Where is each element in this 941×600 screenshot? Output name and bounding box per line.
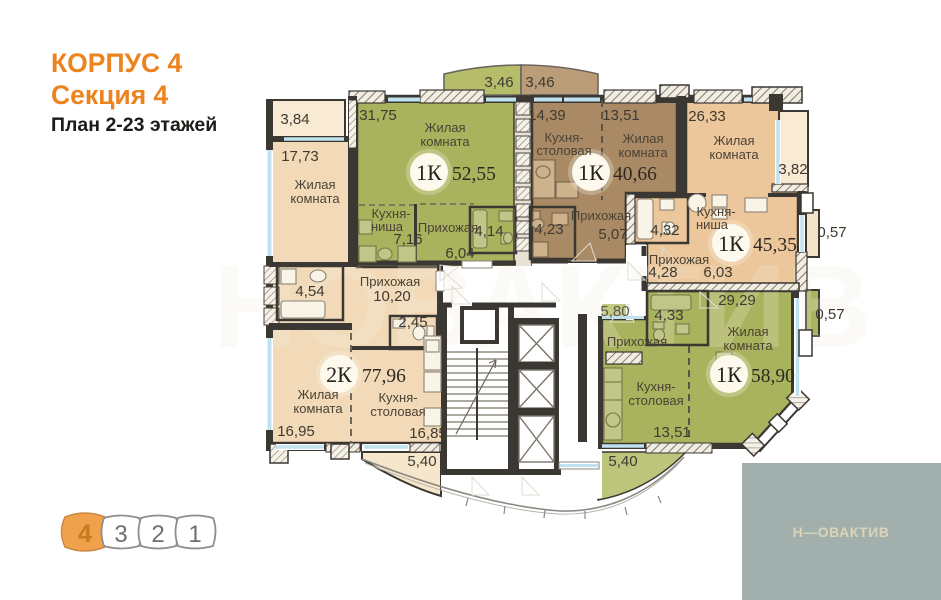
svg-text:4,28: 4,28: [648, 264, 677, 281]
svg-text:5,80: 5,80: [600, 303, 629, 320]
svg-text:3,46: 3,46: [484, 74, 513, 91]
svg-text:Жилая: Жилая: [713, 133, 754, 148]
svg-text:13,51: 13,51: [602, 107, 640, 124]
svg-text:5,07: 5,07: [598, 226, 627, 243]
svg-text:Прихожая: Прихожая: [418, 220, 478, 235]
svg-text:Прихожая: Прихожая: [571, 208, 631, 223]
svg-text:Жилая: Жилая: [424, 120, 465, 135]
svg-text:столовая: столовая: [370, 404, 425, 419]
svg-text:столовая: столовая: [628, 393, 683, 408]
svg-text:комната: комната: [618, 145, 668, 160]
svg-text:5,40: 5,40: [407, 453, 436, 470]
svg-text:3,84: 3,84: [280, 111, 309, 128]
svg-text:Кухня-: Кухня-: [378, 390, 417, 405]
svg-text:6,03: 6,03: [703, 264, 732, 281]
svg-text:столовая: столовая: [536, 143, 591, 158]
svg-text:16,85: 16,85: [409, 425, 447, 442]
svg-text:5,40: 5,40: [608, 453, 637, 470]
svg-text:Секция 4: Секция 4: [51, 80, 169, 110]
svg-text:45,35: 45,35: [753, 235, 797, 256]
svg-text:3,82: 3,82: [778, 161, 807, 178]
svg-text:17,73: 17,73: [281, 148, 319, 165]
svg-text:4,54: 4,54: [295, 283, 324, 300]
svg-text:4,23: 4,23: [534, 221, 563, 238]
svg-text:Прихожая: Прихожая: [360, 274, 420, 289]
svg-text:0,57: 0,57: [817, 224, 846, 241]
svg-text:Жилая: Жилая: [727, 324, 768, 339]
svg-text:комната: комната: [709, 147, 759, 162]
svg-text:Жилая: Жилая: [297, 387, 338, 402]
svg-text:КОРПУС 4: КОРПУС 4: [51, 48, 182, 78]
svg-text:58,90: 58,90: [751, 366, 795, 387]
svg-text:2,45: 2,45: [398, 314, 427, 331]
svg-text:4,32: 4,32: [650, 222, 679, 239]
svg-text:ниша: ниша: [696, 217, 729, 232]
svg-text:16,95: 16,95: [277, 423, 315, 440]
svg-text:6,04: 6,04: [445, 245, 474, 262]
svg-text:3,46: 3,46: [525, 74, 554, 91]
svg-text:40,66: 40,66: [613, 164, 657, 185]
svg-text:Н—ОВАКТИВ: Н—ОВАКТИВ: [793, 524, 890, 540]
svg-text:Жилая: Жилая: [294, 177, 335, 192]
svg-text:4: 4: [78, 520, 92, 548]
svg-text:0,57: 0,57: [815, 306, 844, 323]
svg-text:комната: комната: [290, 191, 340, 206]
svg-text:2К: 2К: [326, 362, 352, 387]
svg-text:26,33: 26,33: [688, 108, 726, 125]
svg-text:комната: комната: [293, 401, 343, 416]
svg-text:Прихожая: Прихожая: [607, 334, 667, 349]
svg-text:4,33: 4,33: [654, 307, 683, 324]
svg-text:1К: 1К: [416, 160, 442, 185]
svg-text:4,14: 4,14: [474, 223, 503, 240]
svg-text:Кухня-: Кухня-: [636, 379, 675, 394]
svg-text:2: 2: [151, 521, 164, 548]
svg-text:3: 3: [114, 521, 127, 548]
svg-text:77,96: 77,96: [362, 366, 406, 387]
svg-text:Жилая: Жилая: [622, 131, 663, 146]
svg-text:29,29: 29,29: [718, 292, 756, 309]
svg-text:План 2-23 этажей: План 2-23 этажей: [51, 114, 217, 136]
svg-text:14,39: 14,39: [528, 107, 566, 124]
svg-text:1К: 1К: [718, 231, 744, 256]
svg-text:1: 1: [188, 521, 201, 548]
svg-text:1К: 1К: [578, 160, 604, 185]
svg-text:13,51: 13,51: [653, 424, 691, 441]
svg-text:52,55: 52,55: [452, 164, 496, 185]
svg-text:комната: комната: [723, 338, 773, 353]
svg-text:1К: 1К: [716, 362, 742, 387]
svg-text:31,75: 31,75: [359, 107, 397, 124]
svg-text:7,16: 7,16: [393, 231, 422, 248]
svg-text:комната: комната: [420, 134, 470, 149]
svg-text:10,20: 10,20: [373, 288, 411, 305]
